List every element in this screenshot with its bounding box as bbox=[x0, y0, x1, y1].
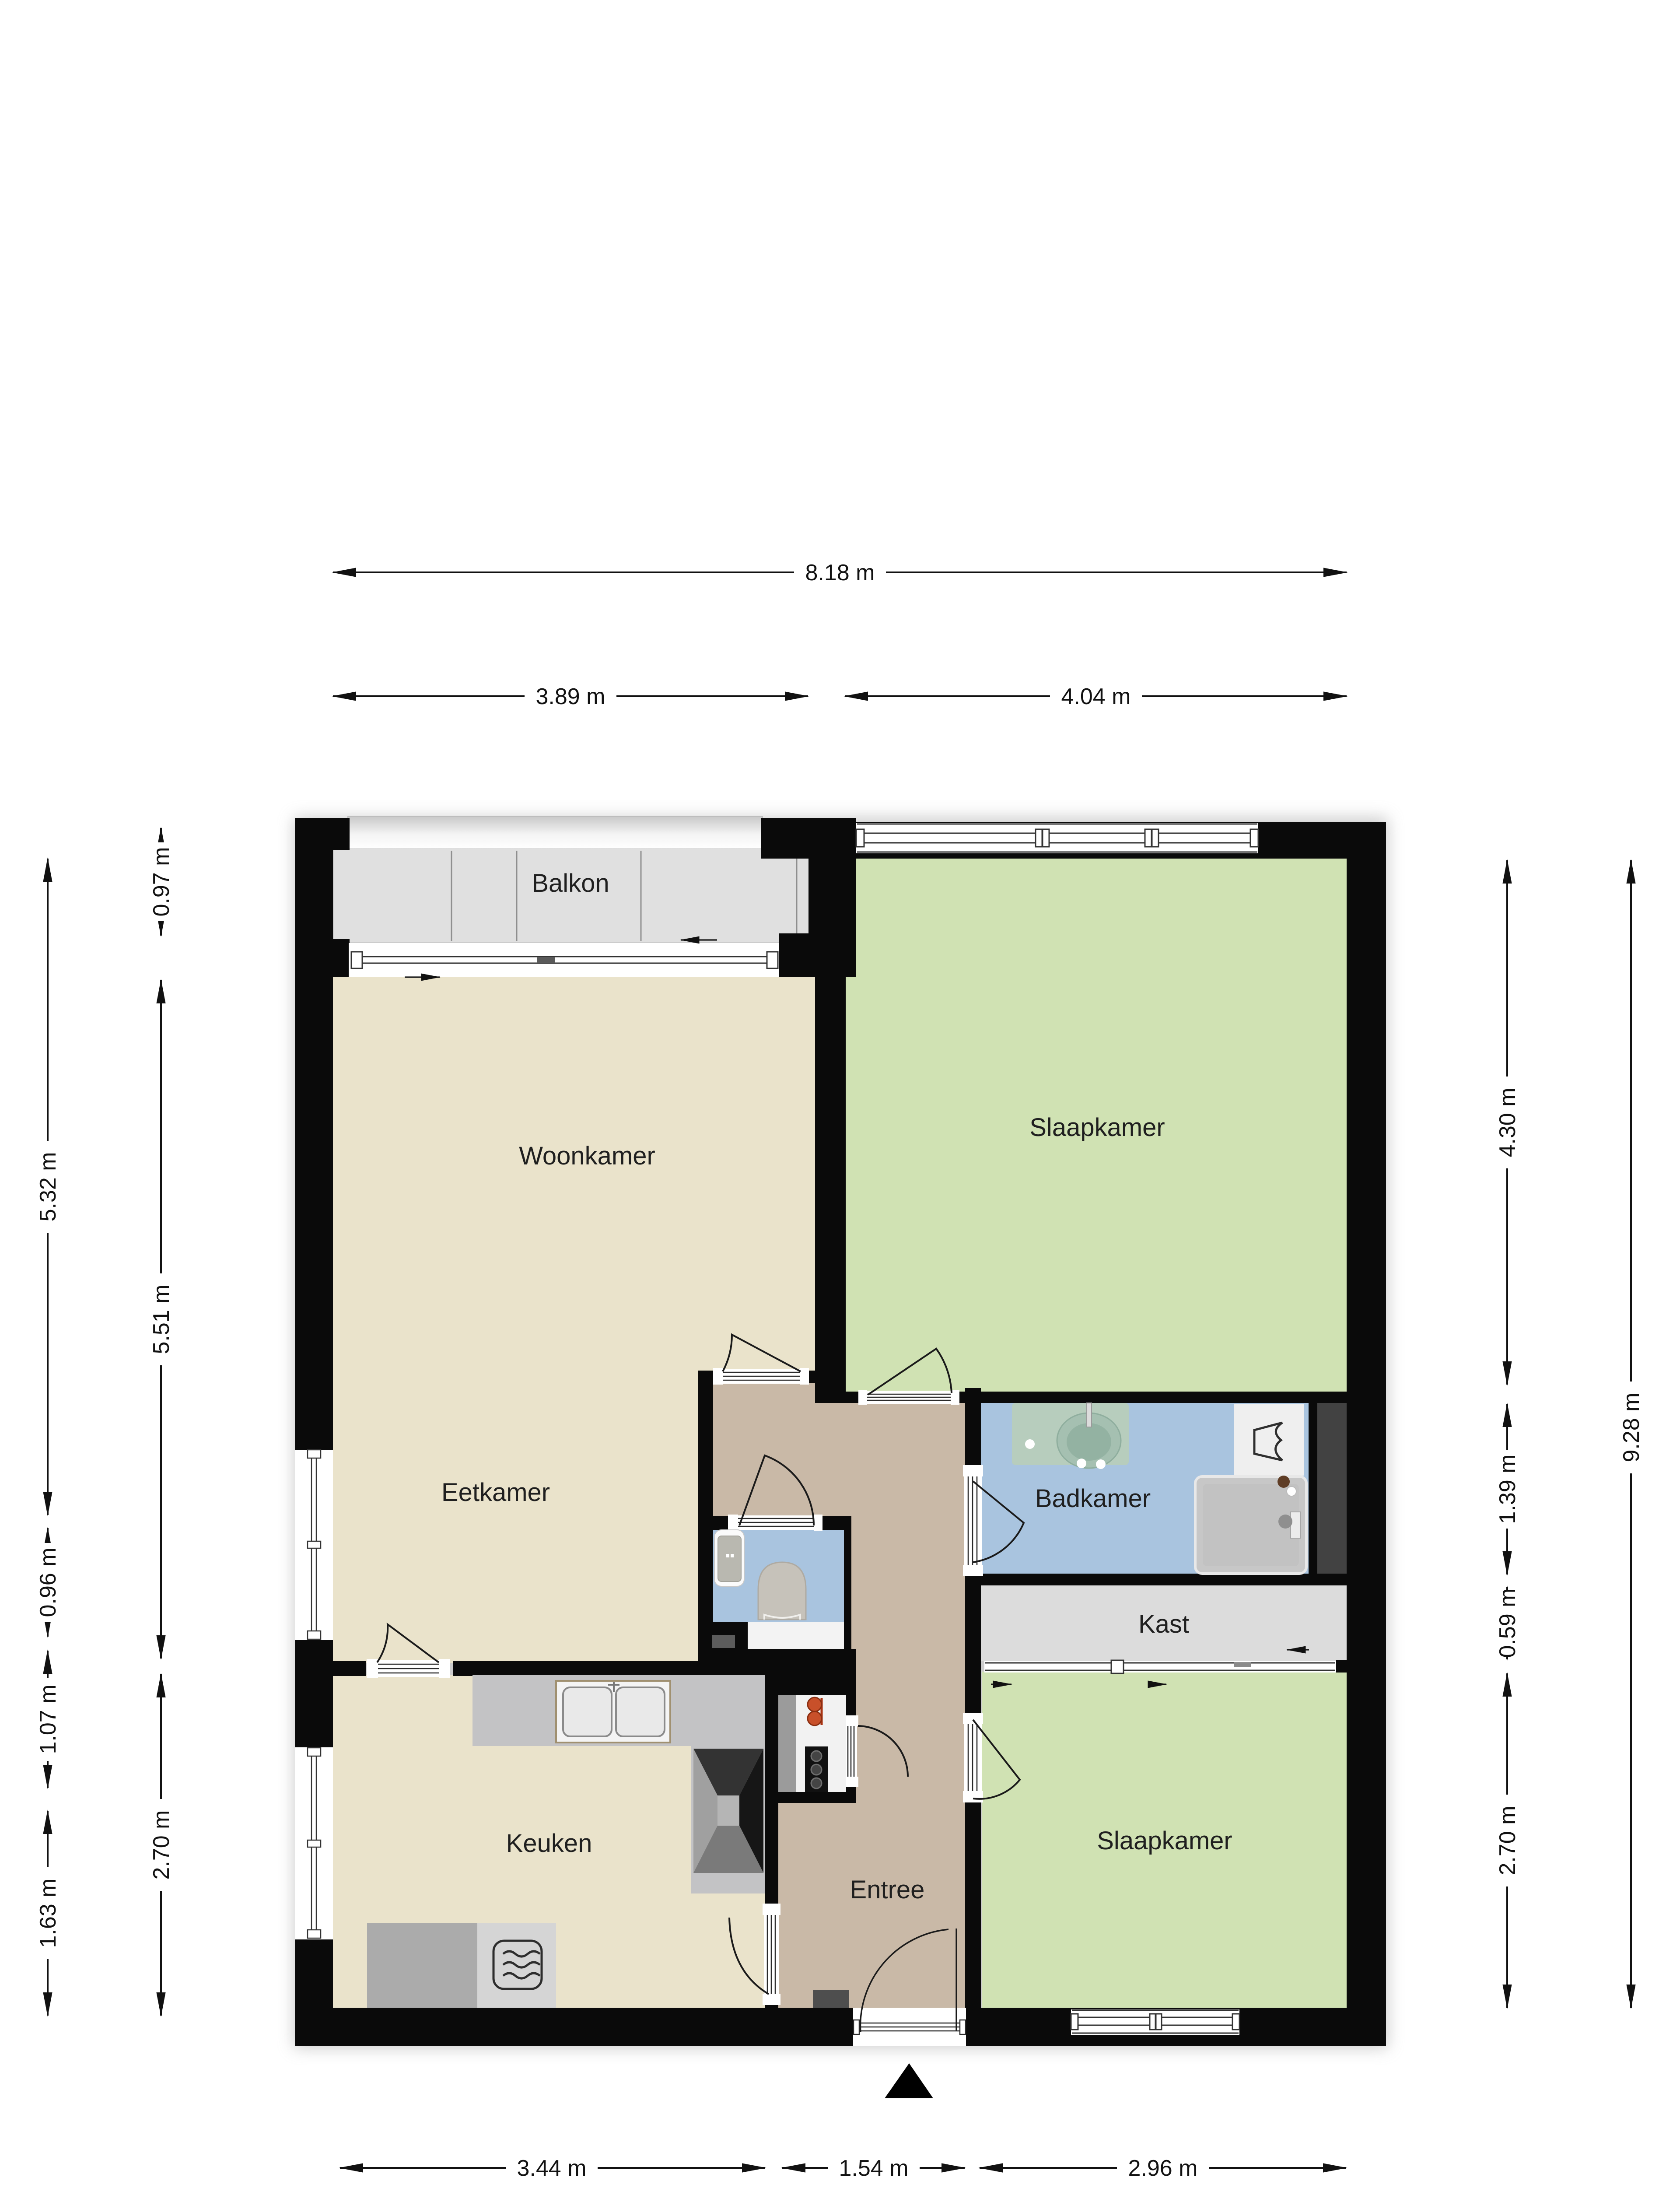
svg-text:Badkamer: Badkamer bbox=[1035, 1484, 1151, 1513]
svg-text:4.04 m: 4.04 m bbox=[1061, 684, 1131, 709]
svg-text:Balkon: Balkon bbox=[532, 869, 609, 898]
svg-text:5.51 m: 5.51 m bbox=[149, 1285, 174, 1354]
svg-text:8.18 m: 8.18 m bbox=[805, 560, 875, 586]
svg-text:Slaapkamer: Slaapkamer bbox=[1029, 1113, 1165, 1142]
svg-text:Slaapkamer: Slaapkamer bbox=[1097, 1827, 1232, 1855]
svg-text:0.97 m: 0.97 m bbox=[149, 847, 174, 917]
svg-text:Kast: Kast bbox=[1138, 1610, 1189, 1638]
svg-text:3.89 m: 3.89 m bbox=[536, 684, 605, 709]
svg-text:Entree: Entree bbox=[850, 1876, 925, 1904]
svg-text:3.44 m: 3.44 m bbox=[517, 2156, 587, 2181]
svg-text:2.70 m: 2.70 m bbox=[1495, 1806, 1520, 1876]
svg-text:1.07 m: 1.07 m bbox=[35, 1685, 61, 1754]
svg-text:4.30 m: 4.30 m bbox=[1495, 1088, 1520, 1157]
svg-text:Woonkamer: Woonkamer bbox=[519, 1142, 655, 1170]
svg-text:2.70 m: 2.70 m bbox=[149, 1810, 174, 1880]
svg-text:9.28 m: 9.28 m bbox=[1619, 1393, 1644, 1462]
svg-text:1.39 m: 1.39 m bbox=[1495, 1455, 1520, 1524]
svg-text:2.96 m: 2.96 m bbox=[1128, 2156, 1198, 2181]
svg-text:Keuken: Keuken bbox=[506, 1829, 592, 1858]
svg-text:Eetkamer: Eetkamer bbox=[441, 1478, 550, 1507]
svg-text:0.59 m: 0.59 m bbox=[1495, 1588, 1520, 1658]
svg-text:1.54 m: 1.54 m bbox=[839, 2156, 909, 2181]
svg-text:1.63 m: 1.63 m bbox=[35, 1879, 61, 1948]
svg-text:0.96 m: 0.96 m bbox=[35, 1548, 61, 1617]
svg-text:5.32 m: 5.32 m bbox=[35, 1152, 61, 1222]
